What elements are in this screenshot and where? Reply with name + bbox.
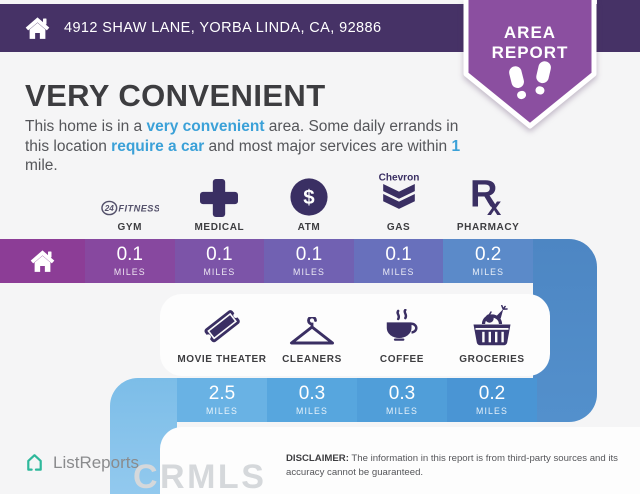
service-label: GROCERIES [459,354,524,365]
distance-unit: MILES [476,406,508,416]
service-label: MOVIE THEATER [177,354,266,365]
distance-value: 0.1 [296,245,322,264]
service-label: PHARMACY [457,222,520,233]
service-atm: $ ATM [264,167,354,233]
service-gym: 24 FITNESS GYM [85,167,175,233]
services-row2: MOVIE THEATER CLEANERS COFF [177,299,537,365]
service-label: MEDICAL [195,222,245,233]
distance-segment: 2.5 MILES [177,378,267,422]
service-gas: Chevron GAS [354,167,444,233]
property-address: 4912 SHAW LANE, YORBA LINDA, CA, 92886 [64,20,381,36]
service-movie-theater: MOVIE THEATER [177,299,267,365]
desc-highlight-one: 1 [451,138,460,155]
gym-logo-number: 24 [104,204,115,213]
rx-icon: R x [469,171,507,217]
ticket-icon [199,303,245,349]
dollar-circle-icon: $ [289,177,329,217]
desc-highlight-very-convenient: very convenient [146,118,264,135]
service-label: CLEANERS [282,354,342,365]
distance-unit: MILES [293,267,325,277]
service-medical: MEDICAL [175,167,265,233]
gas-logo-text: Chevron [378,173,419,184]
distance-segment: 0.1 MILES [264,239,354,283]
basket-icon [468,305,516,349]
listreports-house-icon [24,452,45,473]
service-cleaners: CLEANERS [267,299,357,365]
crmls-watermark: CRMLS [133,458,266,494]
desc-text: This home is in a [25,118,146,135]
distance-unit: MILES [203,267,235,277]
services-row1: 24 FITNESS GYM MEDICAL $ ATM [85,167,533,233]
desc-text: mile. [25,157,58,174]
distance-bar-row1: 0.1 MILES 0.1 MILES 0.1 MILES 0.1 MILES … [0,239,533,283]
distance-segment: 0.2 MILES [447,378,537,422]
listreports-wordmark: ListReports [53,453,139,473]
service-label: ATM [298,222,321,233]
distance-bar-row2: 2.5 MILES 0.3 MILES 0.3 MILES 0.2 MILES [177,378,537,422]
distance-value: 0.3 [299,384,325,403]
distance-value: 0.2 [475,245,501,264]
rx-x: x [487,193,502,217]
distance-segment: 0.2 MILES [443,239,533,283]
service-coffee: COFFEE [357,299,447,365]
service-label: GAS [387,222,410,233]
distance-unit: MILES [383,267,415,277]
area-report-badge: AREA REPORT [440,0,640,140]
service-label: GYM [118,222,143,233]
dollar-symbol: $ [303,186,315,209]
coffee-cup-icon [379,309,425,349]
service-pharmacy: R x PHARMACY [443,167,533,233]
home-icon [29,248,56,274]
distance-value: 0.2 [479,384,505,403]
area-report-infographic: 4912 SHAW LANE, YORBA LINDA, CA, 92886 A… [0,0,640,494]
walkability-title: VERY CONVENIENT [25,78,326,114]
gym-logo-text: FITNESS [118,203,159,213]
distance-unit: MILES [114,267,146,277]
hanger-icon [288,317,336,349]
service-label: COFFEE [380,354,424,365]
home-marker-segment [0,239,85,283]
disclaimer: DISCLAIMER: The information in this repo… [286,452,634,479]
listreports-logo: ListReports [24,452,139,473]
medical-cross-icon [200,179,238,217]
distance-unit: MILES [206,406,238,416]
distance-value: 0.1 [117,245,143,264]
desc-highlight-require-a-car: require a car [111,138,204,155]
desc-text: and most major services are within [204,138,451,155]
distance-value: 0.1 [385,245,411,264]
fitness-24-logo-icon: 24 FITNESS [101,199,159,217]
distance-unit: MILES [472,267,504,277]
distance-segment: 0.1 MILES [85,239,175,283]
badge-line1: AREA [504,23,556,42]
distance-value: 2.5 [209,384,235,403]
service-groceries: GROCERIES [447,299,537,365]
distance-segment: 0.3 MILES [357,378,447,422]
distance-unit: MILES [296,406,328,416]
distance-segment: 0.1 MILES [175,239,265,283]
distance-segment: 0.1 MILES [354,239,444,283]
distance-value: 0.1 [206,245,232,264]
chevron-gas-logo-icon: Chevron [375,171,423,217]
distance-segment: 0.3 MILES [267,378,357,422]
home-icon [24,15,51,41]
badge-line2: REPORT [492,43,569,62]
distance-unit: MILES [386,406,418,416]
disclaimer-label: DISCLAIMER: [286,453,349,464]
distance-value: 0.3 [389,384,415,403]
